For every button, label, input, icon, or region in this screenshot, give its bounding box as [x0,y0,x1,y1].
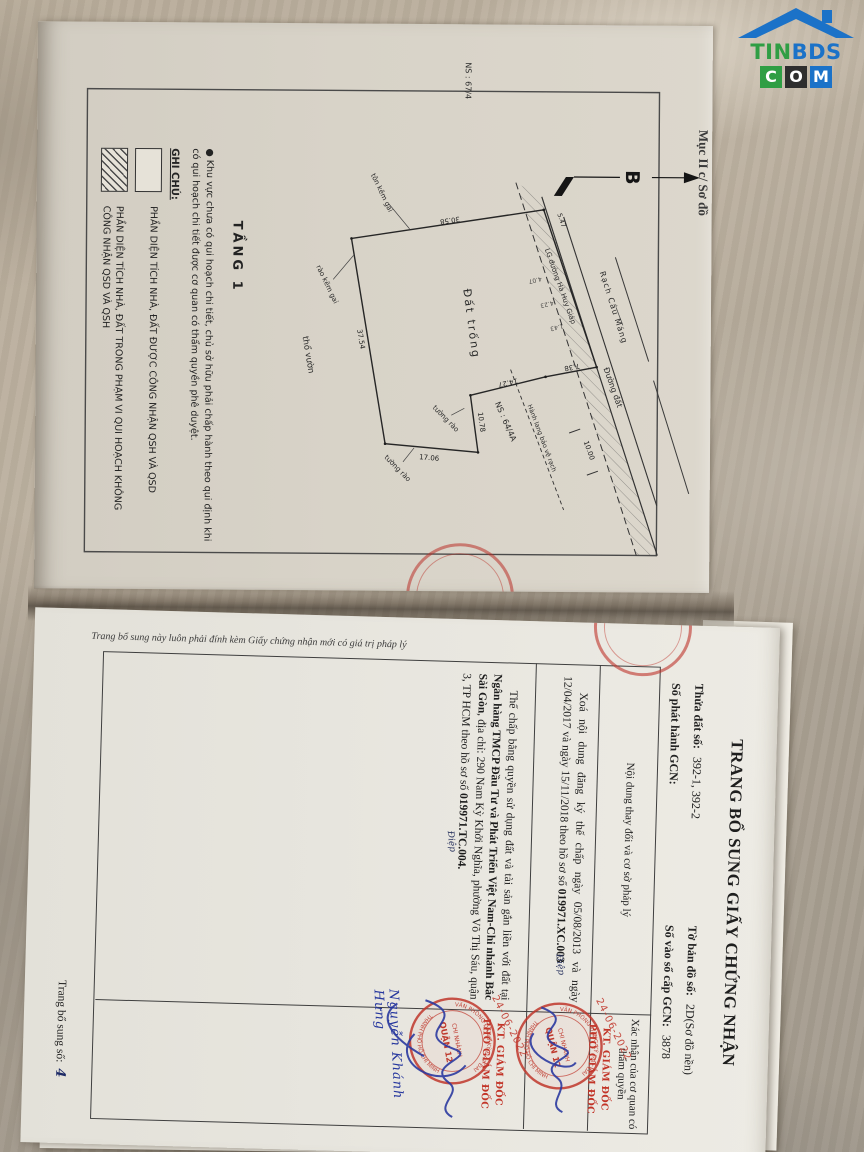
supplement-page-number: Trang bổ sung số:4 [52,980,70,1078]
tinbds-logo: TINBDS C O M [732,6,860,88]
page-title: TRANG BỔ SUNG GIẤY CHỨNG NHẬN [716,669,749,1137]
wall-label-2: tường rào [431,404,461,434]
legend-note-text: Khu vực chưa có qui hoạch chi tiết, chủ … [188,148,215,541]
dim-7-38: 7.38 [564,362,581,373]
logo-bds: BDS [792,40,842,64]
fence-label-1: tôn kẽm gai [369,172,394,213]
dim-s2: 4.23 [539,299,554,309]
planning-area-swatch [101,148,128,192]
logo-com-boxes: C O M [732,66,860,88]
legend-title: GHI CHÚ: [167,148,181,552]
dim-30-58: 30.58 [439,215,460,226]
book-value: 3878 [659,1035,674,1059]
parcel-field: Thửa đất số:392-1, 392-2 [688,684,707,820]
signature-1 [516,1003,589,1117]
dim-14-27: 14.27 [497,376,518,388]
parcel-value: 392-1, 392-2 [689,757,705,819]
legend-note: ● Khu vực chưa có qui hoạch chi tiết, ch… [186,148,216,552]
dim-s3: 1.43 [549,322,564,332]
logo-wordmark: TINBDS [732,42,860,63]
map-page: Mục II c/ Sơ đồ B [34,21,713,593]
dim-5-47: 5.47 [555,212,567,228]
entry-2-text: Thế chấp bằng quyền sử dụng đất và tài s… [449,673,521,1001]
legend-row-1: PHẦN DIỆN TÍCH NHÀ, ĐẤT ĐƯỢC CÔNG NHẬN Q… [133,148,163,552]
recognized-area-swatch [135,148,162,192]
map-legend: ● Khu vực chưa có qui hoạch chi tiết, ch… [97,148,216,553]
floor-label: TẦNG 1 [229,201,245,313]
dim-37-54: 37.54 [355,329,366,351]
dim-17-06: 17.06 [419,453,440,463]
north-letter: B [621,170,643,185]
photo-scene: Mục II c/ Sơ đồ B [0,0,864,1152]
legend-row-2: PHẦN DIỆN TÍCH NHÀ, ĐẤT TRONG PHẠM VI QU… [97,148,128,552]
fence-label-2: rào kẽm gai [314,264,339,305]
book-label: Số vào sổ cấp GCN: [660,925,677,1027]
house-number-2: NS : 64/4A [493,400,518,443]
wall-label-1: tường rào [383,453,413,483]
signer-name: Nguyễn Khánh Hưng [371,989,407,1140]
logo-tin: TIN [750,40,791,64]
dim-s1: 4.07 [528,275,543,285]
vacant-land-label: Đất trống [460,288,482,360]
legend-bullet: ● [204,148,215,156]
logo-box-c: C [760,66,782,88]
dim-10-00: 10.00 [582,440,596,462]
house-roof-icon [736,6,856,40]
garden-label: thổ vườn [300,335,317,374]
house-number-1: NS : 67/4 [463,62,472,99]
corridor-line [510,370,565,510]
logo-box-o: O [785,66,807,88]
issue-label: Số phát hành GCN: [667,683,684,785]
corridor-label: Hành lang bảo vệ rạch [526,403,559,473]
issue-field: Số phát hành GCN: [665,683,683,793]
sheet-label: Tờ bản đồ số: [684,925,700,996]
page-number-value: 4 [52,1068,67,1077]
sheet-field: Tờ bản đồ số:2D(Sơ đồ nền) [680,925,699,1075]
legend-item-1: PHẦN DIỆN TÍCH NHÀ, ĐẤT ĐƯỢC CÔNG NHẬN Q… [145,206,163,526]
supplement-page: Trang bổ sung này luôn phải đính kèm Giấ… [20,607,780,1152]
dim-10-78: 10.78 [476,412,487,433]
entry-2-file-number: 019971.TC.004. [455,793,469,870]
sheet-value: 2D(Sơ đồ nền) [681,1004,697,1075]
parcel-label: Thửa đất số: [691,684,707,750]
page-number-label: Trang bổ sung số: [54,980,68,1063]
book-field: Số vào sổ cấp GCN:3878 [658,925,677,1059]
north-arrow-icon: B [554,170,700,197]
entry-1-file-number: 019971.XC.003 [554,889,568,963]
edge-note: Trang bổ sung này luôn phải đính kèm Giấ… [91,631,463,652]
logo-box-m: M [810,66,832,88]
legend-item-2: PHẦN DIỆN TÍCH NHÀ, ĐẤT TRONG PHẠM VI QU… [97,206,128,526]
